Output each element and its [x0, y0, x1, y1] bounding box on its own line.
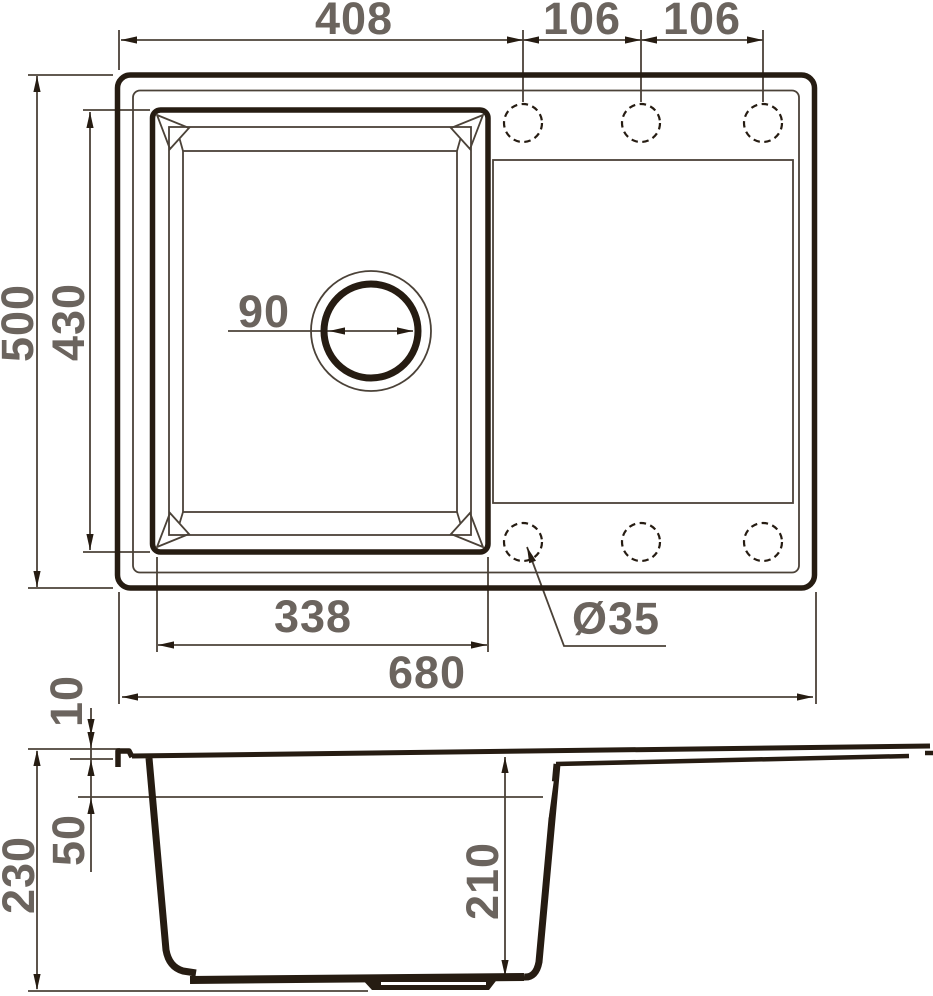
dim-label-500: 500: [0, 284, 43, 362]
sink-outer-outline: [118, 75, 815, 588]
bowl-left-wall: [149, 758, 196, 973]
deck-top-line: [132, 746, 930, 756]
deck-bottom-line: [556, 756, 909, 764]
faucet-hole-top-2: [622, 104, 660, 142]
bowl-right-wall: [524, 764, 557, 977]
bevel-corner-line-bl: [180, 512, 184, 524]
dim-label-210: 210: [457, 842, 508, 920]
bevel-corner-line-tl: [180, 139, 184, 152]
bevel-corner-facet-tl: [157, 115, 189, 149]
bevel-corner-facet-tr: [451, 115, 483, 149]
dim-label-680: 680: [388, 647, 466, 698]
faucet-hole-bottom-2: [622, 523, 660, 561]
section-profile: [118, 746, 933, 990]
faucet-hole-top-3: [744, 104, 782, 142]
dim-label-50: 50: [43, 814, 94, 866]
dim-label-338: 338: [274, 591, 352, 642]
dim-label-408: 408: [315, 0, 393, 44]
dim-label-10: 10: [41, 675, 92, 727]
faucet-holes: [504, 104, 782, 561]
faucet-hole-bottom-1: [504, 523, 542, 561]
bevel-corner-facet-br: [451, 513, 483, 547]
bevel-corner-line-tr: [457, 139, 461, 152]
sink-dimension-drawing: 408 106 106 500 430 90 338 680 Ø35: [0, 0, 933, 996]
section-view: 10 50 230 210: [0, 675, 933, 991]
dim-label-faucet-hole: Ø35: [572, 593, 660, 644]
dim-label-106-left: 106: [543, 0, 621, 44]
left-rim-lip: [118, 751, 132, 767]
bevel-corner-facet-bl: [157, 513, 189, 547]
faucet-hole-bottom-3: [744, 523, 782, 561]
dim-label-230: 230: [0, 836, 44, 914]
top-view: 408 106 106 500 430 90 338 680 Ø35: [0, 0, 816, 704]
drainboard-outline: [493, 160, 793, 503]
dim-label-430: 430: [43, 283, 94, 361]
dim-label-90: 90: [238, 286, 290, 337]
bevel-corner-line-br: [457, 512, 461, 524]
top-view-dimension-lines: [28, 30, 816, 704]
dim-label-106-right: 106: [663, 0, 741, 44]
sink-dimension-drawing-page: 408 106 106 500 430 90 338 680 Ø35: [0, 0, 933, 996]
faucet-hole-top-1: [504, 104, 542, 142]
